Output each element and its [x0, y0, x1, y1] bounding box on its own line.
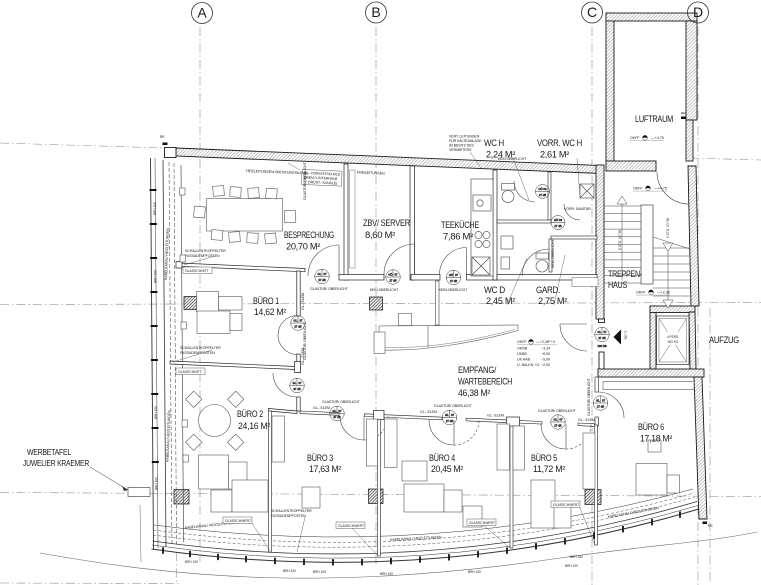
svg-text:8,60 M²: 8,60 M² — [365, 230, 395, 240]
svg-text:300 KG: 300 KG — [668, 340, 679, 344]
svg-text:9 STG. 17/ 38: 9 STG. 17/ 38 — [666, 218, 670, 238]
svg-text:BRH 100: BRH 100 — [380, 572, 393, 576]
svg-text:HAUS: HAUS — [608, 280, 627, 290]
svg-text:20,45 M²: 20,45 M² — [431, 464, 463, 474]
svg-text:2,45 M²: 2,45 M² — [486, 296, 515, 306]
svg-text:EMPFANG/: EMPFANG/ — [458, 365, 497, 375]
svg-text:GL.- ELEM.: GL.- ELEM. — [301, 292, 305, 310]
svg-text:07: 07 — [338, 409, 342, 413]
svg-text:27 dB: 27 dB — [333, 415, 340, 419]
svg-text:OKFF: OKFF — [630, 136, 640, 140]
svg-text:UKBB: UKBB — [517, 352, 527, 356]
svg-text:07: 07 — [559, 418, 563, 422]
svg-text:GLASSCHWERT: GLASSCHWERT — [225, 519, 251, 523]
svg-text:07: 07 — [299, 319, 303, 323]
svg-text:RR: RR — [160, 135, 165, 139]
svg-text:SCHALLENTKOPPELTER: SCHALLENTKOPPELTER — [185, 249, 226, 253]
svg-text:BRH 100: BRH 100 — [565, 564, 578, 568]
svg-text:KEIN OBERLICHT: KEIN OBERLICHT — [439, 288, 468, 292]
svg-text:OKFF: OKFF — [636, 291, 646, 295]
svg-text:GLASTÜR/ OBERLICHT: GLASTÜR/ OBERLICHT — [587, 377, 591, 416]
svg-text:TEEKÜCHE: TEEKÜCHE — [441, 220, 479, 230]
svg-text:UK AAB: UK AAB — [517, 358, 531, 362]
svg-text:FÜR KÄLTEANLAGE: FÜR KÄLTEANLAGE — [449, 139, 482, 143]
svg-text:U. BALKN +Ü.: U. BALKN +Ü. — [517, 363, 540, 367]
svg-text:FASSADENPFOSTEN: FASSADENPFOSTEN — [271, 514, 306, 518]
svg-text:AUFZUG: AUFZUG — [709, 335, 739, 345]
svg-text:BRH 100: BRH 100 — [468, 570, 481, 574]
svg-text:—+4,75: —+4,75 — [651, 136, 664, 140]
svg-text:GL: GL — [293, 381, 297, 385]
svg-text:BRH 100: BRH 100 — [283, 569, 296, 573]
svg-text:A: A — [197, 5, 207, 21]
svg-text:07: 07 — [451, 413, 455, 417]
svg-text:RR: RR — [708, 524, 713, 528]
svg-text:37 dB: 37 dB — [293, 387, 300, 391]
svg-text:2,61 M²: 2,61 M² — [540, 150, 569, 160]
svg-text:HÖ 03: HÖ 03 — [554, 218, 563, 222]
svg-text:SCHALLENTKOPPELTER: SCHALLENTKOPPELTER — [271, 509, 312, 513]
svg-text:17,63 M²: 17,63 M² — [309, 464, 341, 474]
svg-text:BÜRO 2: BÜRO 2 — [237, 409, 263, 419]
svg-text:OKFF: OKFF — [633, 187, 643, 191]
svg-text:ZBV/ SERVER: ZBV/ SERVER — [363, 218, 411, 228]
svg-text:BRH 100: BRH 100 — [154, 406, 158, 419]
svg-text:GLASTÜR/ OBERLICHT: GLASTÜR/ OBERLICHT — [322, 400, 361, 404]
svg-text:SCHALLENTKOPPELTER: SCHALLENTKOPPELTER — [180, 346, 221, 350]
svg-text:WERBETAFEL: WERBETAFEL — [27, 447, 71, 457]
svg-text:JUWELIER KRAEMER: JUWELIER KRAEMER — [23, 458, 89, 468]
svg-text:GL: GL — [318, 272, 322, 276]
svg-text:GL: GL — [598, 330, 602, 334]
svg-text:C: C — [587, 4, 597, 20]
svg-text:BÜRO 5: BÜRO 5 — [531, 453, 557, 463]
svg-text:—+2,38: —+2,38 — [657, 291, 670, 295]
svg-text:−2,50: −2,50 — [541, 363, 550, 367]
svg-text:GLASTÜR/ OBERLICHT: GLASTÜR/ OBERLICHT — [310, 287, 349, 291]
svg-text:GL: GL — [333, 409, 337, 413]
svg-text:27 dB: 27 dB — [450, 279, 457, 283]
svg-text:HÖ 03: HÖ 03 — [538, 187, 547, 191]
svg-text:OKFF: OKFF — [517, 340, 527, 344]
svg-text:GLASSCHNITT: GLASSCHNITT — [185, 269, 209, 273]
svg-text:—+3,38³ +3: —+3,38³ +3 — [536, 340, 555, 344]
svg-text:07: 07 — [394, 273, 398, 277]
svg-text:GL.- ELEM.: GL.- ELEM. — [578, 418, 596, 422]
svg-text:20,70 M²: 20,70 M² — [286, 242, 320, 252]
svg-text:GLASTÜR/ OBERLICHT: GLASTÜR/ OBERLICHT — [303, 161, 307, 200]
svg-text:BRH 100: BRH 100 — [154, 270, 158, 283]
svg-text:GLASSCHNITT: GLASSCHNITT — [178, 370, 202, 374]
svg-text:GLASSCHWERT: GLASSCHWERT — [469, 521, 495, 525]
svg-text:46,38 M²: 46,38 M² — [458, 388, 490, 398]
svg-text:27 dB: 27 dB — [389, 279, 396, 283]
svg-text:BRH 100: BRH 100 — [570, 555, 583, 559]
svg-text:GLASSCHWERT: GLASSCHWERT — [553, 503, 579, 507]
svg-text:−3,34: −3,34 — [541, 347, 550, 351]
svg-text:07: 07 — [323, 272, 327, 276]
svg-text:WC H: WC H — [484, 138, 504, 148]
svg-text:GARD.: GARD. — [536, 285, 560, 295]
svg-text:TREPPEN-: TREPPEN- — [608, 269, 642, 279]
svg-text:GL.- ELEM.: GL.- ELEM. — [313, 406, 331, 410]
svg-text:2,75 M²: 2,75 M² — [538, 296, 567, 306]
svg-text:27 dB: 27 dB — [318, 278, 325, 282]
svg-text:GLASTÜR/ OBERLICHT: GLASTÜR/ OBERLICHT — [538, 409, 577, 413]
svg-text:07: 07 — [603, 330, 607, 334]
svg-text:−6,00: −6,00 — [541, 352, 550, 356]
svg-text:KEIN OBERLICHT: KEIN OBERLICHT — [551, 239, 555, 268]
svg-text:17,18 M²: 17,18 M² — [640, 434, 672, 444]
svg-text:BRH 100: BRH 100 — [153, 202, 157, 215]
svg-text:27 dB: 27 dB — [554, 424, 561, 428]
svg-text:BÜRO 6: BÜRO 6 — [638, 422, 664, 432]
svg-text:4 PERS.: 4 PERS. — [667, 335, 679, 339]
svg-text:07: 07 — [602, 399, 606, 403]
svg-text:GL: GL — [294, 319, 298, 323]
svg-text:7,86 M²: 7,86 M² — [443, 232, 473, 242]
svg-text:B: B — [371, 4, 380, 20]
svg-text:BRH 100: BRH 100 — [185, 560, 198, 564]
svg-text:GL.- ELEM.: GL.- ELEM. — [301, 347, 305, 365]
svg-text:24,16 M²: 24,16 M² — [238, 421, 270, 431]
svg-text:BÜRO 3: BÜRO 3 — [307, 453, 333, 463]
svg-text:27 dB: 27 dB — [294, 325, 301, 329]
svg-text:VERMIETERS: VERMIETERS — [449, 148, 472, 152]
svg-text:GLASSCHWERT: GLASSCHWERT — [338, 524, 364, 528]
svg-text:27 dB: 27 dB — [554, 224, 561, 228]
svg-text:VORR. WC H: VORR. WC H — [537, 138, 582, 148]
svg-text:11,72 M²: 11,72 M² — [533, 464, 565, 474]
svg-text:VERT. LEITUNGEN: VERT. LEITUNGEN — [449, 135, 480, 139]
svg-text:BRH 100: BRH 100 — [313, 570, 326, 574]
svg-text:07: 07 — [298, 381, 302, 385]
svg-text:130 RS: 130 RS — [597, 344, 606, 348]
svg-text:VORR. SANITÄR: VORR. SANITÄR — [564, 207, 591, 211]
svg-text:27 dB: 27 dB — [597, 405, 604, 409]
svg-text:6 STG. 17/ 38: 6 STG. 17/ 38 — [618, 230, 622, 250]
svg-text:OKRB: OKRB — [517, 347, 528, 351]
svg-text:1. OG: 1. OG — [624, 331, 628, 340]
svg-text:GL: GL — [596, 399, 600, 403]
svg-text:37 dB: 37 dB — [598, 336, 605, 340]
svg-text:27 dB: 27 dB — [539, 193, 546, 197]
svg-text:2,24 M²: 2,24 M² — [486, 150, 515, 160]
svg-text:BÜRO 4: BÜRO 4 — [429, 453, 455, 463]
svg-text:27 dB: 27 dB — [446, 419, 453, 423]
svg-text:GL.- ELEM.: GL.- ELEM. — [487, 414, 505, 418]
svg-text:D: D — [693, 4, 703, 20]
svg-text:BÜRO 1: BÜRO 1 — [253, 296, 279, 306]
svg-text:14,62 M²: 14,62 M² — [254, 307, 286, 317]
svg-text:−5,90: −5,90 — [541, 358, 550, 362]
svg-text:RR: RR — [681, 112, 686, 116]
svg-text:IM BESITZ DES: IM BESITZ DES — [449, 144, 474, 148]
svg-text:BRH 100: BRH 100 — [155, 477, 159, 490]
svg-text:—+4,75: —+4,75 — [654, 187, 667, 191]
svg-text:GL: GL — [554, 418, 558, 422]
svg-text:GL.- ELEM.: GL.- ELEM. — [420, 410, 438, 414]
svg-text:GLASTÜR/ OBERLICHT: GLASTÜR/ OBERLICHT — [434, 404, 473, 408]
svg-text:WARTEBEREICH: WARTEBEREICH — [458, 377, 512, 387]
svg-text:KEIN OBERLICHT: KEIN OBERLICHT — [370, 288, 399, 292]
svg-text:BESPRECHUNG: BESPRECHUNG — [284, 230, 334, 240]
svg-text:WC D: WC D — [484, 285, 506, 295]
svg-text:LUFTRAUM: LUFTRAUM — [635, 114, 673, 124]
svg-text:GL: GL — [445, 413, 449, 417]
svg-text:07: 07 — [455, 273, 459, 277]
